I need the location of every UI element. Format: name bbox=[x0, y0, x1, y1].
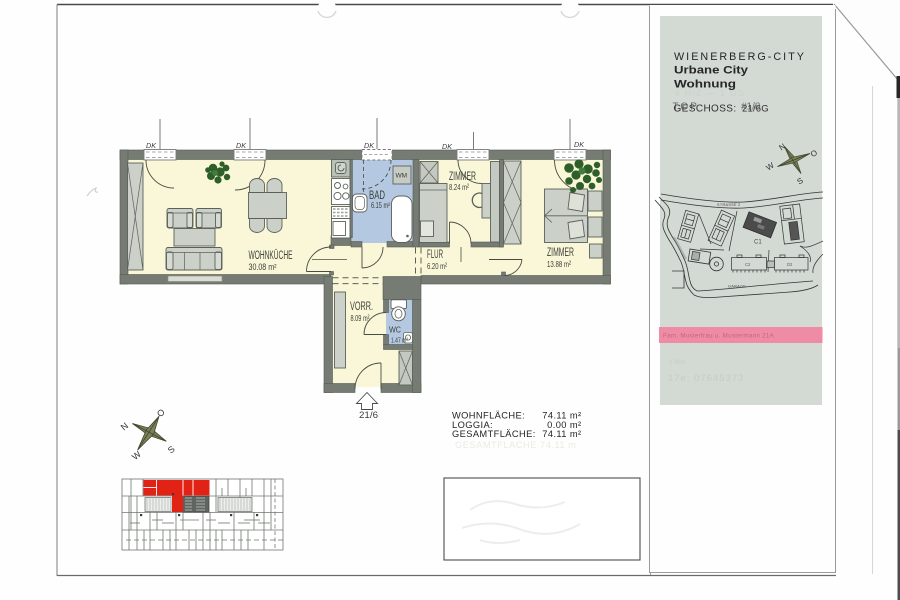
svg-text:6.20 m²: 6.20 m² bbox=[427, 261, 447, 271]
svg-text:DK: DK bbox=[364, 141, 375, 150]
svg-text:21/6: 21/6 bbox=[359, 410, 378, 421]
svg-text:#1/8: #1/8 bbox=[741, 102, 761, 113]
svg-text:STRASSE 2: STRASSE 2 bbox=[717, 203, 741, 207]
svg-text:Fam. Musterfrau u. Mustermann: Fam. Musterfrau u. Mustermann 21A bbox=[663, 333, 775, 340]
svg-text:1.47 m²: 1.47 m² bbox=[391, 336, 408, 345]
svg-text:74.11 m²: 74.11 m² bbox=[542, 429, 581, 439]
svg-text:DK: DK bbox=[146, 141, 157, 150]
svg-text:D2: D2 bbox=[787, 262, 793, 267]
svg-text:DK: DK bbox=[236, 141, 247, 150]
svg-text:Urbane City: Urbane City bbox=[674, 65, 749, 77]
svg-text:GESAMTFLÄCHE:: GESAMTFLÄCHE: bbox=[452, 429, 536, 439]
svg-text:DK: DK bbox=[442, 142, 453, 151]
svg-text:FLUR: FLUR bbox=[427, 249, 443, 261]
svg-text:30.08 m²: 30.08 m² bbox=[249, 262, 277, 272]
svg-text:GESAMTFLACHE 74.11 m: GESAMTFLACHE 74.11 m bbox=[455, 440, 576, 450]
svg-text:TOP: TOP bbox=[673, 102, 699, 113]
svg-text:ZIMMER: ZIMMER bbox=[547, 247, 574, 259]
svg-text:WIENERBERG-CITY: WIENERBERG-CITY bbox=[674, 51, 806, 63]
svg-text:4 MIE — 1 OG: 4 MIE — 1 OG bbox=[675, 89, 745, 98]
svg-text:17e: 07645373: 17e: 07645373 bbox=[668, 373, 744, 384]
svg-text:WOHNKÜCHE: WOHNKÜCHE bbox=[249, 250, 293, 262]
svg-text:C2: C2 bbox=[745, 262, 751, 267]
svg-text:+ les: + les bbox=[668, 357, 685, 366]
svg-text:WC: WC bbox=[389, 325, 401, 335]
svg-text:8.09 m²: 8.09 m² bbox=[351, 313, 370, 323]
svg-text:6.15 m²: 6.15 m² bbox=[371, 201, 390, 210]
svg-text:C1: C1 bbox=[754, 240, 762, 246]
svg-text:VORR.: VORR. bbox=[350, 301, 373, 313]
svg-text:DK: DK bbox=[574, 140, 585, 149]
svg-text:8.24 m²: 8.24 m² bbox=[449, 182, 469, 192]
svg-text:GARAGE: GARAGE bbox=[728, 285, 746, 289]
svg-text:WM: WM bbox=[396, 173, 408, 180]
svg-text:13.88 m²: 13.88 m² bbox=[547, 259, 571, 269]
